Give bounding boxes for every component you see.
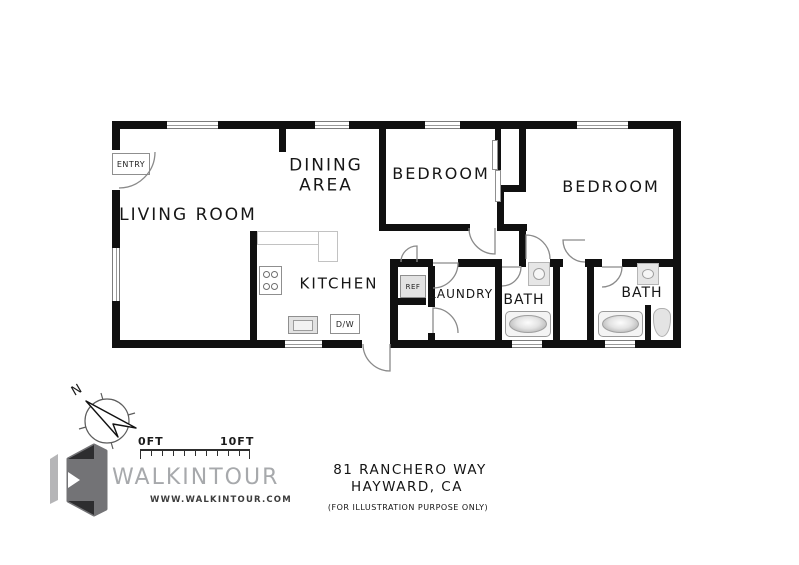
stove-burner-icon xyxy=(263,283,270,290)
bath1-door-arc xyxy=(502,267,521,286)
floorplan-page: D/W REF ENTRY LIVING ROOM DINING AREA BE… xyxy=(0,0,799,565)
wall-interior xyxy=(379,121,386,231)
scale-bar xyxy=(140,449,250,460)
window xyxy=(425,121,460,129)
refrigerator: REF xyxy=(400,275,426,298)
wall-interior xyxy=(250,231,257,340)
wall-interior xyxy=(495,259,502,340)
closet-sliding-door xyxy=(495,170,501,202)
bathtub xyxy=(598,311,643,337)
brand-website: WWW.WALKINTOUR.COM xyxy=(150,495,292,505)
window xyxy=(605,340,635,348)
stove-burner-icon xyxy=(271,271,278,278)
disclaimer-text: (FOR ILLUSTRATION PURPOSE ONLY) xyxy=(328,503,488,512)
scale-start-label: 0FT xyxy=(138,435,164,448)
window xyxy=(577,121,628,129)
window xyxy=(112,248,120,301)
room-label-living-room: LIVING ROOM xyxy=(119,206,257,226)
wall-interior xyxy=(553,266,560,340)
laundry-closet-arc xyxy=(433,308,458,333)
room-label-bath-1: BATH xyxy=(503,292,544,308)
wall-interior xyxy=(458,259,495,267)
refrigerator-label: REF xyxy=(406,283,421,291)
address-line-2: HAYWARD, CA xyxy=(351,479,463,495)
stove-burner-icon xyxy=(271,283,278,290)
window xyxy=(512,340,542,348)
closet-sliding-door xyxy=(492,140,498,170)
stove-burner-icon xyxy=(263,271,270,278)
bathroom-sink xyxy=(528,262,550,286)
room-label-bedroom-2: BEDROOM xyxy=(562,178,660,196)
wall-interior xyxy=(645,305,651,340)
wall-exterior-right xyxy=(673,121,681,348)
kitchen-sink xyxy=(288,316,318,334)
compass-rose xyxy=(79,393,136,449)
brand-wordmark: WALKINTOUR xyxy=(112,465,279,490)
room-label-bedroom-1: BEDROOM xyxy=(392,165,490,183)
window xyxy=(285,340,322,348)
bathtub xyxy=(505,311,551,337)
bath2-door-arc xyxy=(602,267,622,287)
hall-door-arc xyxy=(563,240,585,262)
room-label-dining-area: DINING AREA xyxy=(289,156,363,195)
entry-label: ENTRY xyxy=(117,160,145,169)
compass-circle xyxy=(85,399,129,443)
kitchen-door-arc xyxy=(363,344,390,371)
kitchen-counter xyxy=(318,231,338,262)
window xyxy=(167,121,218,129)
kitchen-door-opening xyxy=(362,340,390,348)
wall-interior xyxy=(497,224,527,231)
compass-north-label: N xyxy=(69,382,85,400)
wall-interior xyxy=(521,259,526,267)
wall-interior xyxy=(379,224,470,231)
dishwasher-label: D/W xyxy=(336,320,354,329)
room-label-kitchen: KITCHEN xyxy=(300,275,379,292)
wall-interior xyxy=(587,266,594,340)
toilet xyxy=(653,308,671,337)
wall-interior xyxy=(279,121,286,152)
wall-interior xyxy=(390,259,398,340)
dishwasher: D/W xyxy=(330,314,360,334)
walkintour-logo-icon xyxy=(50,445,106,515)
window xyxy=(315,121,349,129)
wall-interior xyxy=(428,333,435,340)
scale-end-label: 10FT xyxy=(220,435,254,448)
compass-needle-icon xyxy=(86,401,136,437)
wall-exterior-bottom xyxy=(112,340,681,348)
bedroom1-door-arc xyxy=(469,228,495,254)
wall-interior xyxy=(398,298,426,305)
room-label-bath-2: BATH xyxy=(621,285,662,301)
room-label-laundry: LAUNDRY xyxy=(429,288,493,302)
stove xyxy=(259,266,282,295)
wall-interior xyxy=(519,121,526,187)
entry-marker: ENTRY xyxy=(112,153,150,175)
bathroom-sink xyxy=(637,263,659,285)
laundry-door-arc xyxy=(433,263,458,288)
bedroom2-door-arc xyxy=(526,235,550,259)
address-line-1: 81 RANCHERO WAY xyxy=(333,462,487,478)
